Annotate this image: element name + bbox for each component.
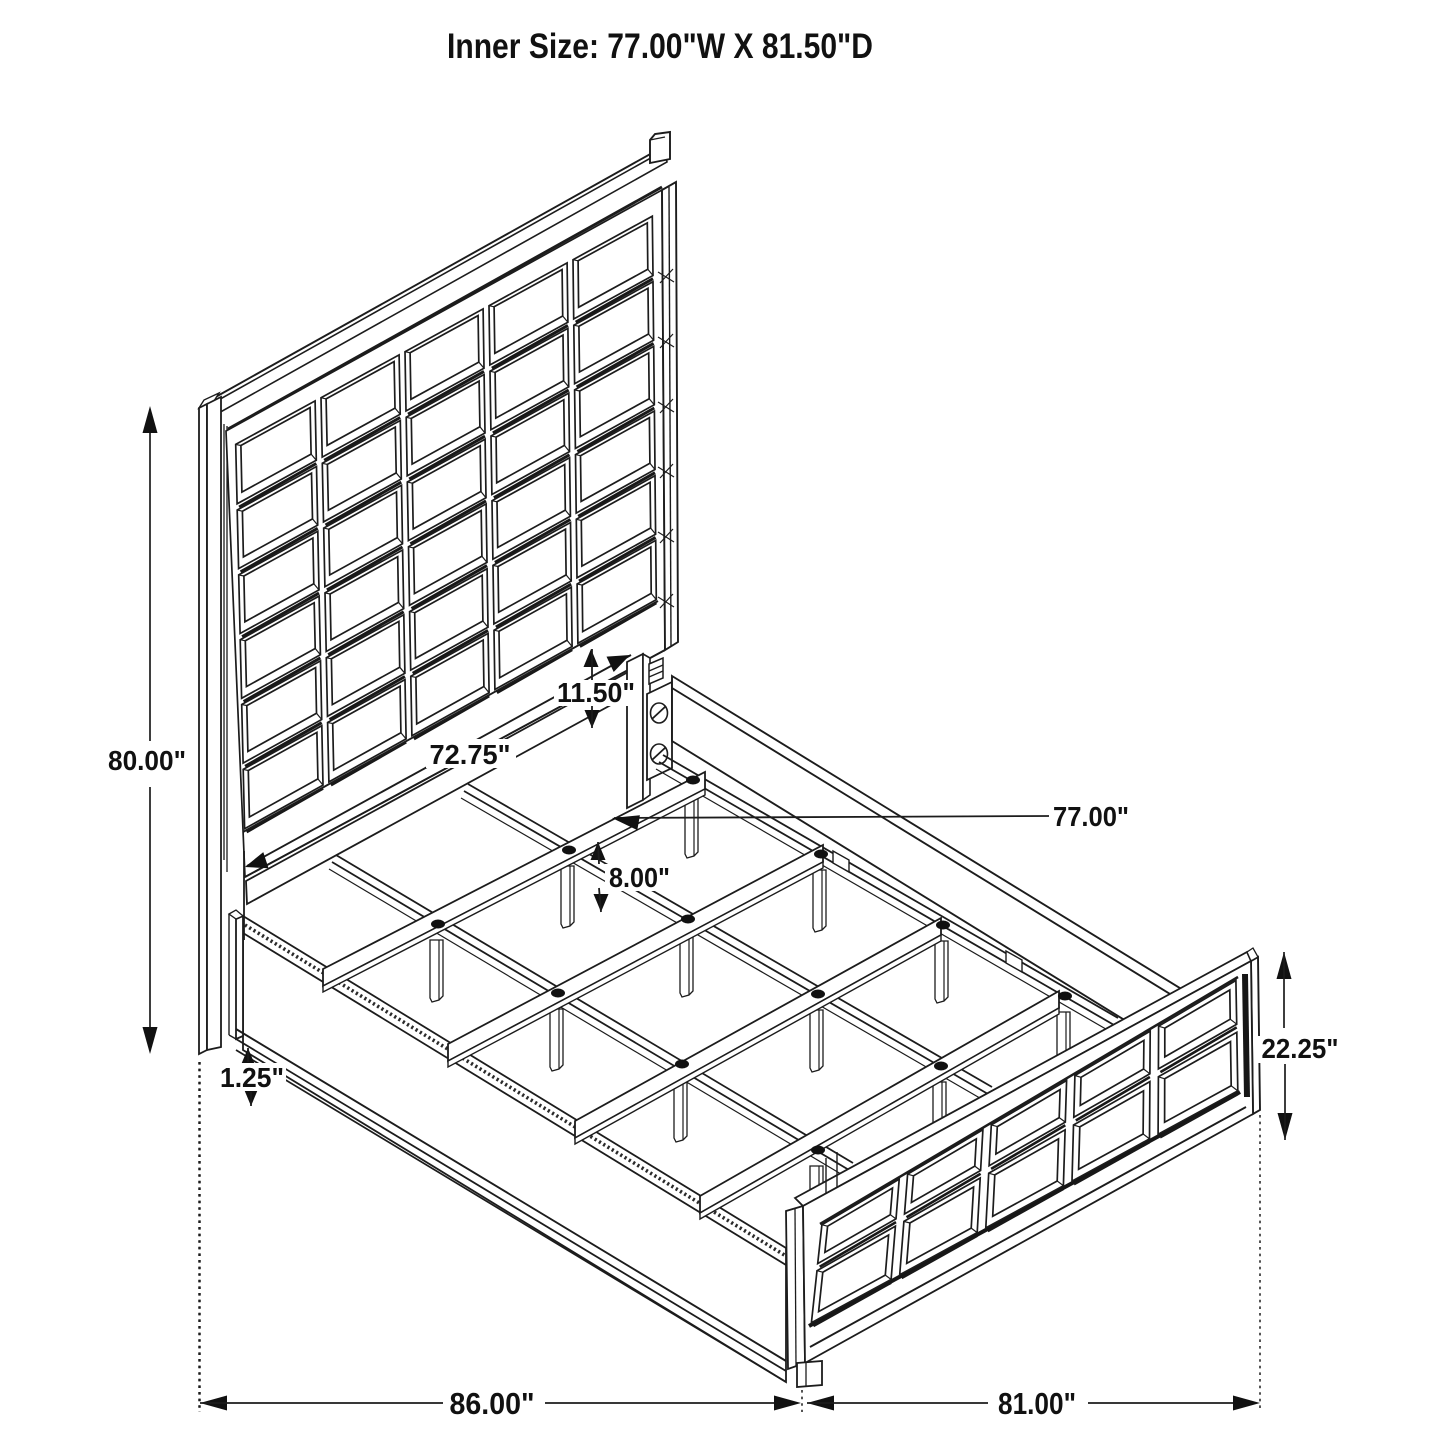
svg-text:80.00": 80.00" (108, 745, 186, 776)
svg-text:77.00": 77.00" (1053, 801, 1129, 832)
svg-text:72.75": 72.75" (430, 739, 511, 770)
svg-text:86.00": 86.00" (450, 1386, 535, 1421)
svg-text:22.25": 22.25" (1262, 1033, 1339, 1064)
svg-text:1.25": 1.25" (220, 1062, 284, 1093)
svg-text:81.00": 81.00" (998, 1386, 1076, 1421)
svg-text:8.00": 8.00" (609, 862, 670, 893)
svg-text:11.50": 11.50" (557, 677, 635, 708)
svg-text:Inner Size: 77.00"W X 81.50"D: Inner Size: 77.00"W X 81.50"D (447, 27, 873, 66)
